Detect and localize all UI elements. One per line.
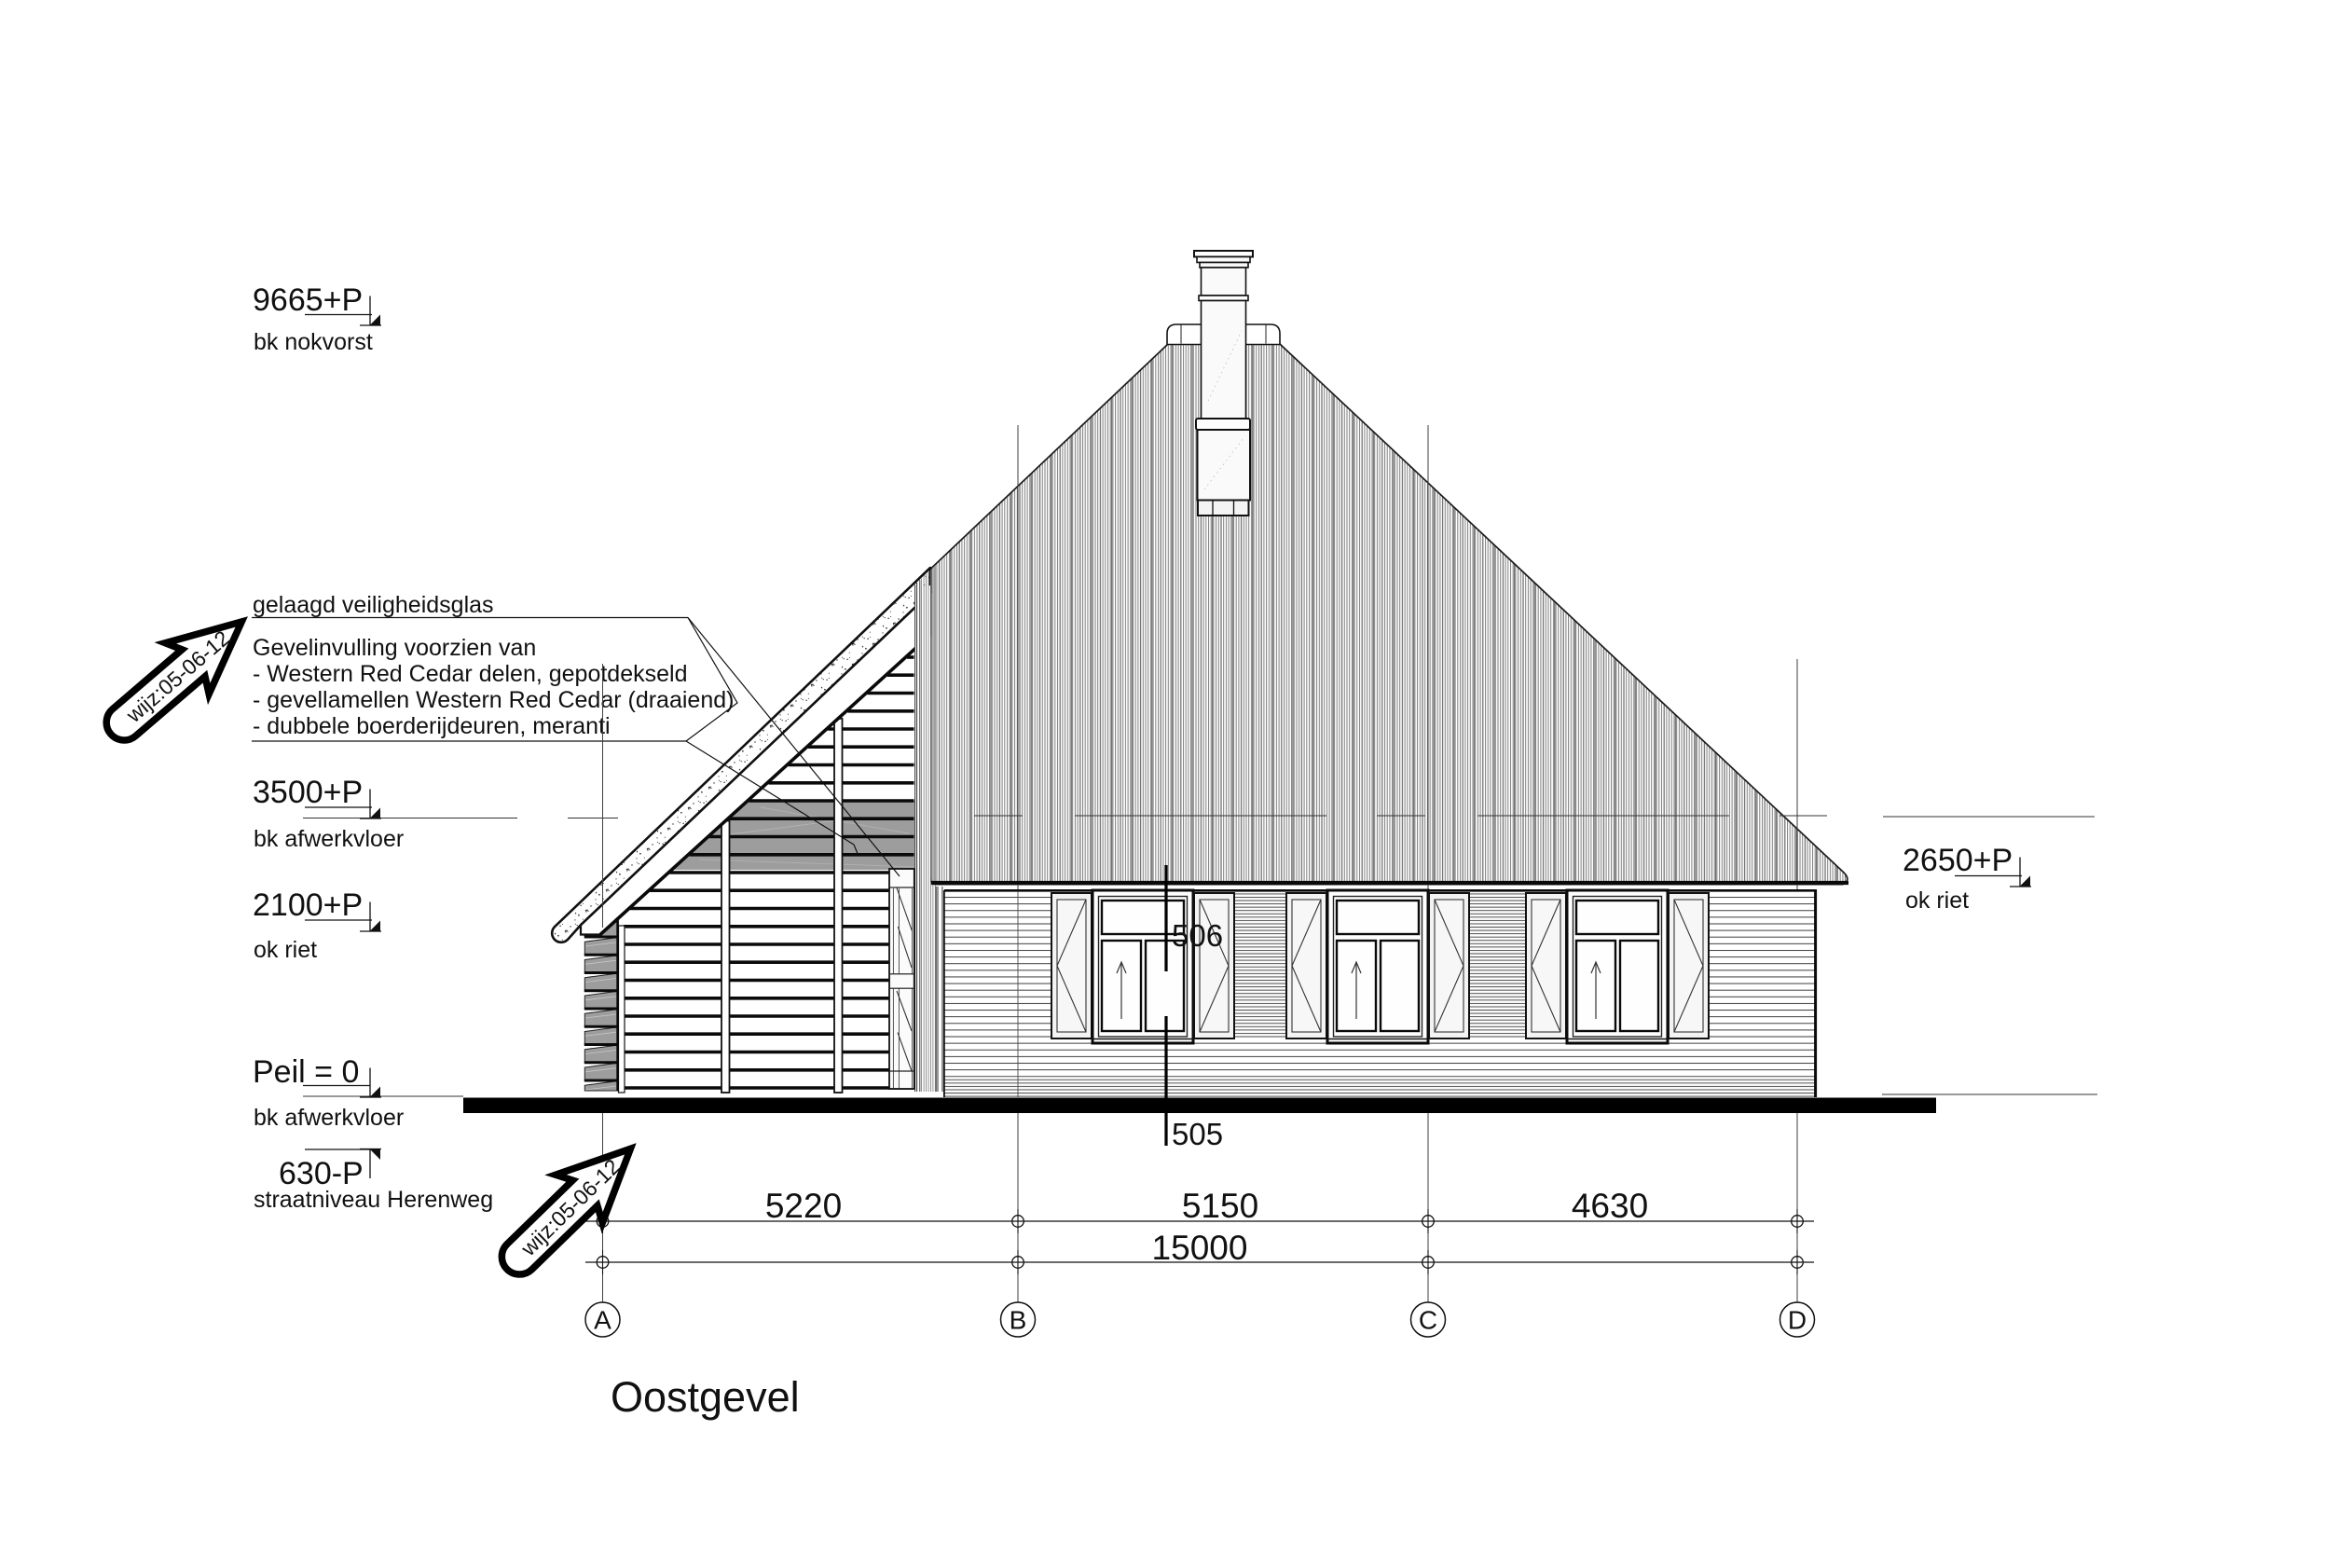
svg-text:2650+P: 2650+P — [1903, 843, 2013, 878]
svg-text:- gevellamellen Western Red Ce: - gevellamellen Western Red Cedar (draai… — [253, 687, 734, 713]
svg-text:Oostgevel: Oostgevel — [611, 1373, 800, 1421]
svg-text:A: A — [594, 1306, 611, 1335]
svg-text:- dubbele boerderijdeuren, mer: - dubbele boerderijdeuren, meranti — [253, 713, 611, 739]
svg-text:Gevelinvulling voorzien van: Gevelinvulling voorzien van — [253, 635, 536, 661]
svg-text:2100+P: 2100+P — [253, 887, 363, 923]
svg-text:bk afwerkvloer: bk afwerkvloer — [254, 826, 404, 852]
svg-text:ok riet: ok riet — [254, 937, 317, 963]
svg-text:- Western Red Cedar delen, gep: - Western Red Cedar delen, gepotdekseld — [253, 661, 687, 687]
svg-text:505: 505 — [1172, 1117, 1223, 1151]
svg-text:5220: 5220 — [765, 1187, 842, 1225]
svg-text:D: D — [1788, 1306, 1807, 1335]
svg-text:3500+P: 3500+P — [253, 775, 363, 810]
svg-text:506: 506 — [1172, 918, 1223, 953]
svg-text:straatniveau Herenweg: straatniveau Herenweg — [254, 1187, 493, 1213]
svg-text:bk nokvorst: bk nokvorst — [254, 329, 373, 355]
svg-text:bk afwerkvloer: bk afwerkvloer — [254, 1105, 404, 1131]
svg-text:C: C — [1419, 1306, 1437, 1335]
svg-text:5150: 5150 — [1182, 1187, 1258, 1225]
svg-text:4630: 4630 — [1572, 1187, 1648, 1225]
svg-text:15000: 15000 — [1152, 1229, 1248, 1267]
svg-text:B: B — [1010, 1306, 1027, 1335]
svg-text:gelaagd veiligheidsglas: gelaagd veiligheidsglas — [253, 592, 494, 618]
svg-text:9665+P: 9665+P — [253, 282, 363, 318]
svg-text:Peil = 0: Peil = 0 — [253, 1054, 359, 1090]
svg-text:ok riet: ok riet — [1905, 887, 1969, 914]
